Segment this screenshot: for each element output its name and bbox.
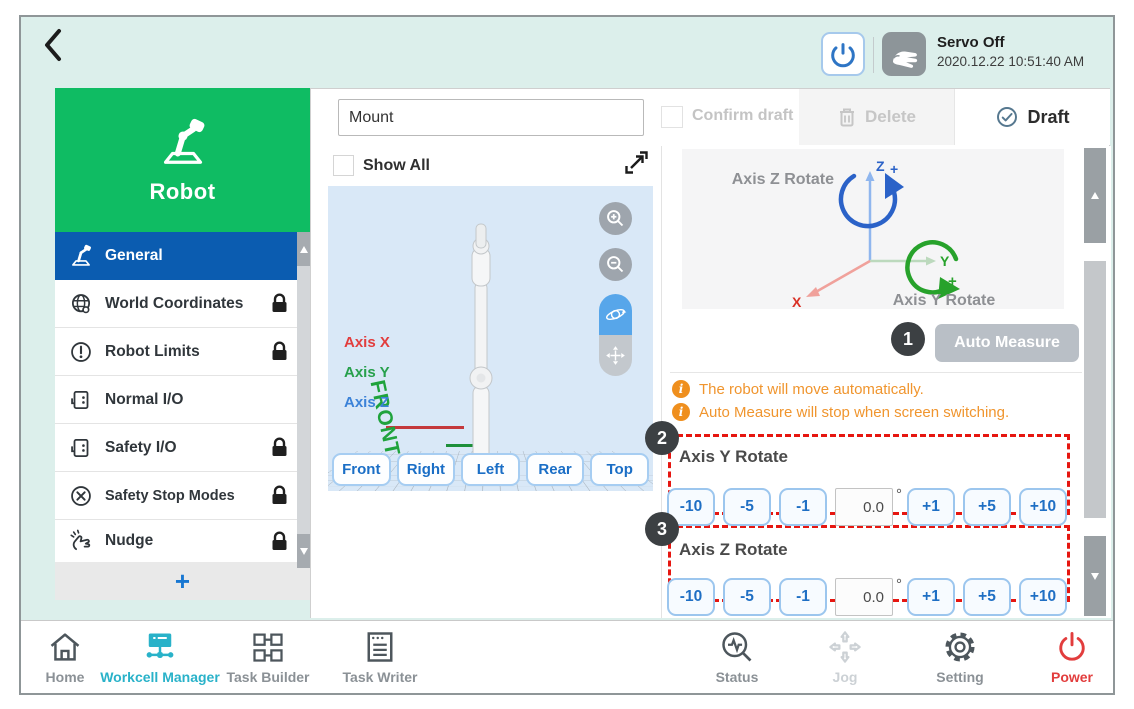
hand-icon (888, 38, 920, 70)
lock-icon (270, 341, 289, 362)
show-all-label: Show All (363, 157, 430, 175)
draft-button[interactable]: Draft (954, 89, 1110, 145)
sidebar-scrollbar[interactable] (297, 232, 310, 568)
stop-circle-icon (68, 483, 94, 509)
robot-arm-icon (68, 243, 94, 269)
measure-panel: Axis Z Rotate Z + Y + (661, 146, 1111, 618)
sidebar-item-label: Normal I/O (105, 391, 289, 409)
sidebar-item-label: Safety I/O (105, 439, 270, 457)
sidebar-item-nudge[interactable]: Nudge (55, 520, 297, 562)
sidebar-menu: General World Coordinates Robot Limits (55, 232, 310, 562)
status-icon (719, 629, 755, 665)
sidebar-item-label: World Coordinates (105, 295, 270, 313)
svg-text:Y: Y (940, 253, 950, 269)
robot-3d-model (446, 208, 516, 476)
chevron-left-icon (47, 31, 59, 59)
svg-text:+: + (890, 161, 898, 177)
sidebar-title: Robot (149, 179, 215, 205)
callout-1: 1 (891, 322, 925, 356)
floor-front-label: FRONT (365, 378, 405, 459)
timestamp: 2020.12.22 10:51:40 AM (937, 54, 1084, 69)
io-icon (68, 387, 94, 413)
lock-icon (270, 485, 289, 506)
view-rear-button[interactable]: Rear (526, 453, 585, 486)
axis-z-plus-5-button[interactable]: +5 (963, 578, 1011, 616)
task-builder-icon (250, 629, 286, 665)
viewport-3d[interactable]: FRONT Axis X Axis Y Axis Z (328, 186, 653, 491)
draft-label: Draft (1027, 107, 1069, 128)
info-icon: i (672, 380, 690, 398)
axis-y-plus-5-button[interactable]: +5 (963, 488, 1011, 526)
axis-z-value-input[interactable] (835, 578, 893, 616)
gripper-icon (828, 39, 858, 69)
axis-y-minus-1-button[interactable]: -1 (779, 488, 827, 526)
zoom-out-button[interactable] (599, 248, 632, 281)
zoom-out-icon (605, 254, 626, 275)
sidebar-item-safety-stop-modes[interactable]: Safety Stop Modes (55, 472, 297, 520)
sidebar-header: Robot (55, 88, 310, 232)
axis-z-plus-1-button[interactable]: +1 (907, 578, 955, 616)
section-title-axis-y: Axis Y Rotate (679, 447, 1067, 467)
sidebar-item-label: Robot Limits (105, 343, 270, 361)
jog-icon (827, 629, 863, 665)
workcell-manager-icon (142, 629, 178, 665)
view-top-button[interactable]: Top (590, 453, 649, 486)
confirm-draft-checkbox[interactable] (661, 106, 683, 128)
axis-y-plus-10-button[interactable]: +10 (1019, 488, 1067, 526)
notice-row: i The robot will move automatically. (672, 380, 924, 398)
back-button[interactable] (37, 25, 71, 65)
axis-rotate-diagram: Axis Z Rotate Z + Y + (682, 149, 1064, 309)
lock-icon (270, 531, 289, 552)
panel-scroll-thumb[interactable] (1084, 261, 1106, 518)
sidebar-item-general[interactable]: General (55, 232, 297, 280)
bottom-nav: Home Workcell Manager Task Builder Task … (21, 620, 1113, 693)
axis-z-minus-5-button[interactable]: -5 (723, 578, 771, 616)
alert-circle-icon (68, 339, 94, 365)
auto-measure-button[interactable]: Auto Measure (935, 324, 1079, 362)
sidebar-item-label: Nudge (105, 532, 270, 550)
view-left-button[interactable]: Left (461, 453, 520, 486)
header-divider (873, 37, 874, 73)
add-workcell-button[interactable]: + (55, 562, 310, 600)
svg-text:Z: Z (876, 158, 885, 174)
sidebar-item-world-coordinates[interactable]: World Coordinates (55, 280, 297, 328)
zoom-in-icon (605, 208, 626, 229)
axis-y-label: Axis Y (344, 364, 390, 381)
app-window: Servo Off 2020.12.22 10:51:40 AM Robot G… (19, 15, 1115, 695)
main-panel: Confirm draft Delete Draft Show All (310, 88, 1110, 618)
show-all-checkbox[interactable] (333, 155, 354, 176)
notice-text: Auto Measure will stop when screen switc… (699, 404, 1009, 421)
axis-z-label: Axis Z (344, 394, 389, 411)
panel-scroll-down[interactable] (1084, 536, 1106, 616)
servo-hand-button[interactable] (882, 32, 926, 76)
name-input[interactable] (338, 99, 644, 136)
check-circle-icon (995, 105, 1019, 129)
nudge-hand-icon (68, 528, 94, 554)
delete-label: Delete (865, 107, 916, 127)
delete-button[interactable]: Delete (799, 89, 954, 145)
pan-icon (604, 344, 627, 367)
panel-scroll-up[interactable] (1084, 148, 1106, 243)
axis-z-rotate-label: Axis Z Rotate (732, 171, 834, 188)
screenshot-root: Servo Off 2020.12.22 10:51:40 AM Robot G… (0, 0, 1134, 709)
viewer-panel: Show All FRONT (311, 146, 661, 618)
sidebar-item-safety-io[interactable]: Safety I/O (55, 424, 297, 472)
nav-task-writer[interactable]: Task Writer (305, 629, 455, 685)
confirm-draft-label: Confirm draft (692, 107, 793, 125)
zoom-in-button[interactable] (599, 202, 632, 235)
info-icon: i (672, 403, 690, 421)
view-front-button[interactable]: Front (332, 453, 391, 486)
robot-arm-icon (155, 115, 211, 171)
orbit-mode-button[interactable] (599, 294, 632, 335)
section-title-axis-z: Axis Z Rotate (679, 540, 1067, 560)
orbit-pan-toggle[interactable] (599, 294, 632, 376)
sidebar: Robot General World Coordinates (55, 88, 310, 600)
svg-text:X: X (792, 294, 802, 309)
lock-icon (270, 437, 289, 458)
gripper-button[interactable] (821, 32, 865, 76)
expand-icon (623, 149, 650, 176)
orbit-icon (604, 303, 627, 326)
divider (670, 372, 1082, 373)
notice-text: The robot will move automatically. (699, 381, 924, 398)
io-icon (68, 435, 94, 461)
axis-y-rotate-label: Axis Y Rotate (893, 292, 996, 309)
axis-z-minus-1-button[interactable]: -1 (779, 578, 827, 616)
pan-mode-button[interactable] (599, 335, 632, 376)
axis-y-value-input[interactable] (835, 488, 893, 526)
sidebar-item-robot-limits[interactable]: Robot Limits (55, 328, 297, 376)
scroll-up-arrow[interactable] (297, 232, 310, 266)
axis-z-degree-unit: ° (896, 576, 902, 593)
axis-y-minus-5-button[interactable]: -5 (723, 488, 771, 526)
expand-button[interactable] (623, 149, 650, 176)
plus-icon: + (175, 566, 190, 597)
callout-3: 3 (645, 512, 679, 546)
globe-icon (68, 291, 94, 317)
trash-icon (837, 106, 857, 128)
view-right-button[interactable]: Right (397, 453, 456, 486)
power-icon (1054, 629, 1090, 665)
servo-status: Servo Off (937, 34, 1005, 51)
home-icon (47, 629, 83, 665)
scroll-down-arrow[interactable] (297, 534, 310, 568)
axis-z-plus-10-button[interactable]: +10 (1019, 578, 1067, 616)
lock-icon (270, 293, 289, 314)
sidebar-item-normal-io[interactable]: Normal I/O (55, 376, 297, 424)
task-writer-icon (362, 629, 398, 665)
axis-y-plus-1-button[interactable]: +1 (907, 488, 955, 526)
sidebar-item-label: General (105, 247, 289, 265)
toolbar: Confirm draft Delete Draft (311, 89, 1109, 147)
axis-y-degree-unit: ° (896, 486, 902, 503)
view-buttons-row: Front Right Left Rear Top (332, 453, 649, 486)
callout-2: 2 (645, 421, 679, 455)
sidebar-item-label: Safety Stop Modes (105, 488, 270, 504)
axis-z-minus-10-button[interactable]: -10 (667, 578, 715, 616)
notice-row: i Auto Measure will stop when screen swi… (672, 403, 1009, 421)
gear-icon (942, 629, 978, 665)
axis-x-label: Axis X (344, 334, 390, 351)
nav-power[interactable]: Power (997, 629, 1134, 685)
